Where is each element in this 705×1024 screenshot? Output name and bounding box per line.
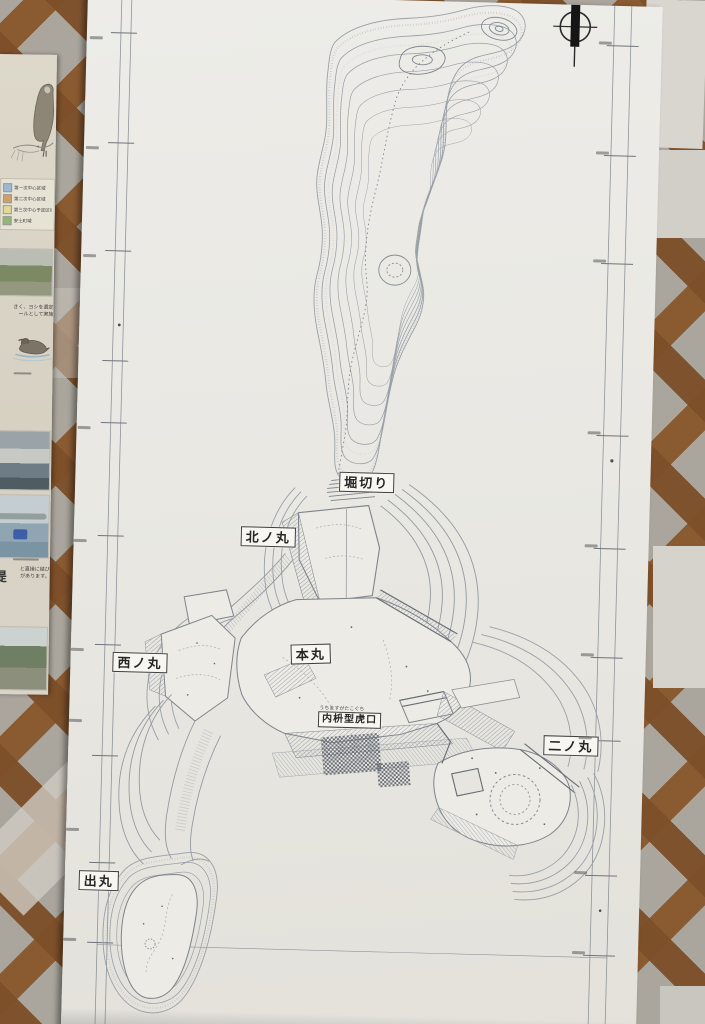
grid-tick-label [90, 36, 103, 39]
legend-row: 安土町域 [3, 216, 52, 226]
label-demaru: 出丸 [78, 870, 119, 891]
legend-label: 第一次中心区域 [14, 185, 46, 191]
legend-swatch-yellow [3, 205, 12, 214]
label-nishinomaru: 西ノ丸 [112, 652, 168, 673]
grid-tick-label [588, 431, 601, 434]
grid-tick-label [71, 648, 84, 651]
grid-tick-label [593, 259, 606, 262]
photo-lake-boat [0, 494, 50, 559]
panel-heading-char: 堤 [0, 566, 7, 585]
grid-tick-label [585, 544, 598, 547]
wall-patch [653, 546, 705, 688]
grid-tick-label [572, 951, 585, 954]
photo-village [0, 626, 48, 691]
far-shore [0, 513, 47, 520]
interpretive-sign-panel: 第一次中心区域 第二次中心区域 第三次中心予定区域 安土町域 きく、ヨシを選定 … [0, 54, 57, 695]
photo-of-castle-map-board: 第一次中心区域 第二次中心区域 第三次中心予定区域 安土町域 きく、ヨシを選定 … [0, 0, 705, 1024]
legend-swatch-blue [3, 183, 12, 192]
panel-text-2: 堤 と直接に結び があります。 [0, 566, 56, 586]
grid-tick-label [86, 146, 99, 149]
grid-tick-label [74, 539, 87, 542]
panel-text-1: きく、ヨシを選定 ールとして実施 [0, 304, 57, 319]
legend-swatch-orange [3, 194, 12, 203]
grid-tick-label [581, 653, 594, 656]
grid-tick-label [579, 736, 592, 739]
legend-swatch-green [3, 216, 12, 225]
label-horikiri: 堀切り [339, 472, 395, 493]
legend-label: 第二次中心区域 [14, 196, 46, 202]
grid-tick-label [83, 254, 96, 257]
photo-caption-smudge [13, 558, 39, 560]
map-legend: 第一次中心区域 第二次中心区域 第三次中心予定区域 安土町域 [0, 178, 55, 231]
photo-harbor-boats [0, 430, 51, 491]
photo-riverbank [0, 248, 53, 297]
grid-tick-label [596, 151, 609, 154]
label-kitanomaru: 北ノ丸 [241, 526, 297, 547]
legend-row: 第一次中心区域 [3, 183, 52, 193]
north-symbol-icon [544, 4, 610, 78]
castle-map-board: 堀切り 北ノ丸 本丸 西ノ丸 うちますがたこぐち 内枡型虎口 二ノ丸 出丸 [61, 0, 663, 1024]
grid-tick-label [69, 719, 82, 722]
duck-caption-smudge [14, 372, 32, 374]
duck-illustration [2, 326, 57, 371]
wagtail-sketch [2, 136, 57, 167]
label-honmaru: 本丸 [290, 644, 331, 665]
label-uchimasugata: 内枡型虎口 [318, 711, 381, 729]
wall-patch [660, 986, 705, 1024]
grid-tick-label [78, 426, 91, 429]
contour-map-drawing [61, 0, 663, 1024]
legend-label: 第三次中心予定区域 [14, 207, 52, 214]
grid-tick-label [574, 871, 587, 874]
grid-tick-label [66, 828, 79, 831]
legend-row: 第三次中心予定区域 [3, 205, 52, 215]
grid-tick-label [63, 938, 76, 941]
ridge-to-demaru [117, 693, 222, 866]
legend-row: 第二次中心区域 [3, 194, 52, 204]
legend-label: 安土町域 [14, 218, 32, 224]
blue-boat [13, 529, 27, 539]
ridge-contours [309, 1, 526, 487]
